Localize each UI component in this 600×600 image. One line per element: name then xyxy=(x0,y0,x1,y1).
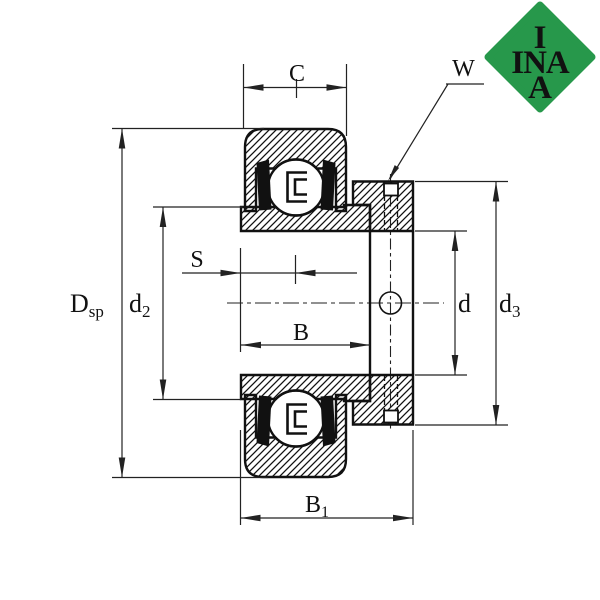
label-C: C xyxy=(289,61,305,87)
set-screw-socket-top xyxy=(384,184,398,196)
label-S: S xyxy=(190,247,203,273)
set-screw-socket-bottom xyxy=(384,411,398,423)
seal-bottom-right xyxy=(321,396,336,447)
label-d: d xyxy=(458,289,471,318)
seal-top-left xyxy=(257,160,272,211)
drawing-canvas: C W Dsp d2 S B B1 d d3 I INA A xyxy=(0,0,600,600)
label-W: W xyxy=(452,56,475,82)
logo-text-bottom: A xyxy=(528,70,552,106)
seal-top-right xyxy=(321,160,336,211)
label-B: B xyxy=(293,320,309,346)
bearing-technical-drawing: C W Dsp d2 S B B1 d d3 I INA A xyxy=(0,0,600,600)
seal-bottom-left xyxy=(257,396,272,447)
